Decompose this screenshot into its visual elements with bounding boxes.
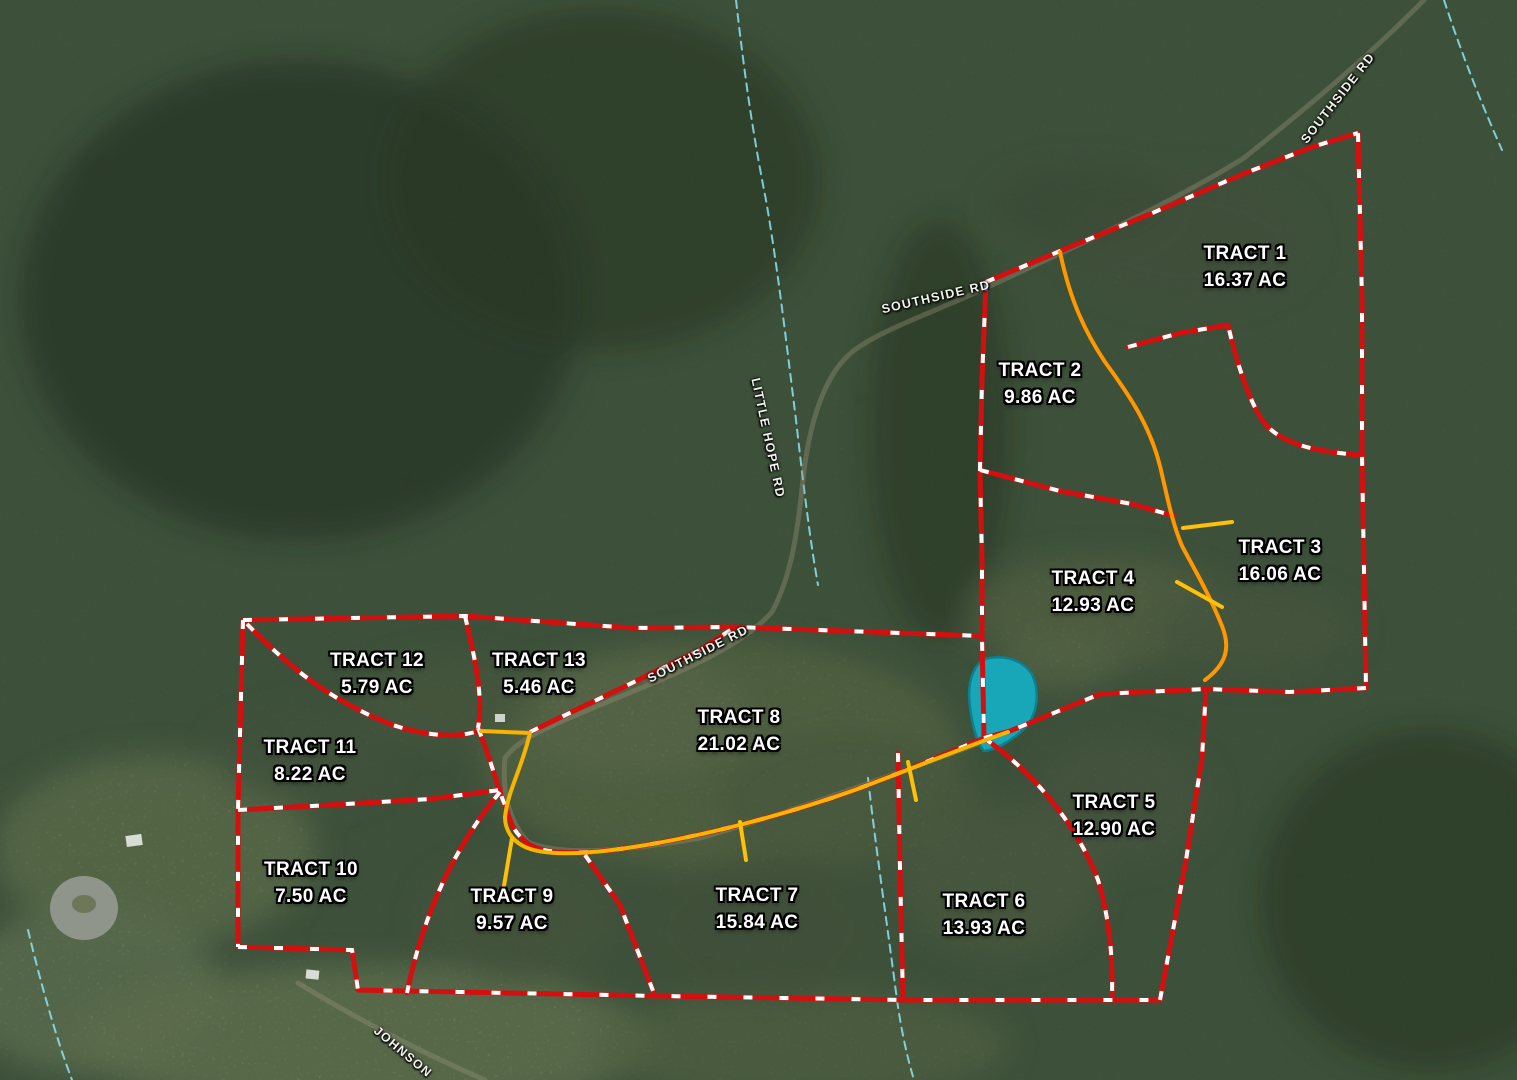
parcel-map	[0, 0, 1517, 1080]
building	[125, 834, 142, 847]
building	[495, 714, 505, 722]
building	[306, 969, 320, 979]
parcel-map-canvas: TRACT 116.37 ACTRACT 29.86 ACTRACT 316.0…	[0, 0, 1517, 1080]
pond-island	[72, 895, 96, 913]
satellite-terrain	[0, 0, 1517, 1080]
